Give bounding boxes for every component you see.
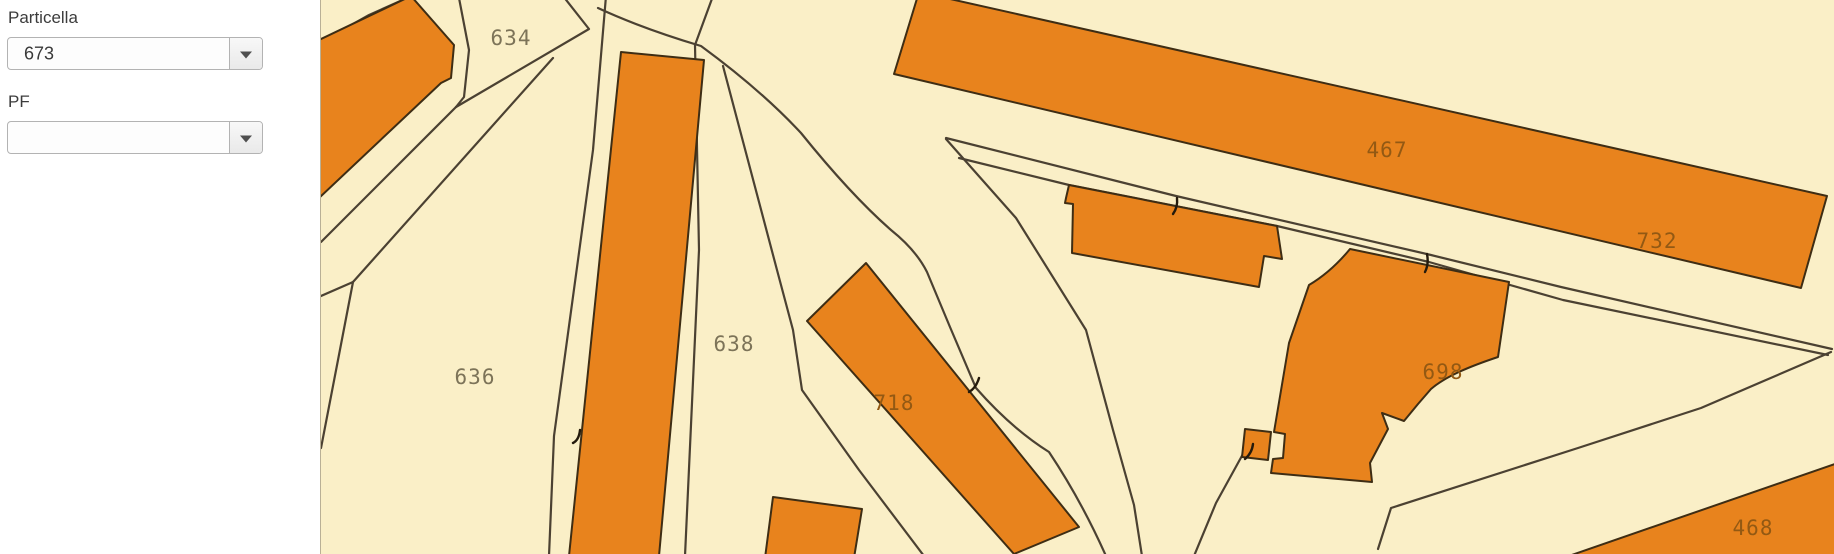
field-pf: PF bbox=[0, 92, 320, 154]
pf-label: PF bbox=[8, 92, 320, 112]
map-viewport[interactable]: 634 636 638 718 467 732 698 468 bbox=[320, 0, 1834, 554]
particella-selected-value: 673 bbox=[24, 43, 54, 64]
field-particella: Particella 673 bbox=[0, 8, 320, 70]
chevron-down-icon bbox=[240, 135, 252, 142]
parcel-label-638: 638 bbox=[714, 332, 755, 356]
parcel-label-732: 732 bbox=[1637, 229, 1678, 253]
particella-dropdown-button[interactable] bbox=[229, 38, 262, 69]
cadastral-map-canvas[interactable]: 634 636 638 718 467 732 698 468 bbox=[321, 0, 1834, 554]
pf-select[interactable] bbox=[7, 121, 263, 154]
parcel-label-698: 698 bbox=[1423, 360, 1464, 384]
particella-select[interactable]: 673 bbox=[7, 37, 263, 70]
parcel-label-718: 718 bbox=[874, 391, 915, 415]
particella-label: Particella bbox=[8, 8, 320, 28]
chevron-down-icon bbox=[240, 51, 252, 58]
parcel-label-467: 467 bbox=[1367, 138, 1408, 162]
pf-dropdown-button[interactable] bbox=[229, 122, 262, 153]
building-small-square bbox=[1242, 429, 1271, 460]
parcel-label-634: 634 bbox=[491, 26, 532, 50]
parcel-label-468: 468 bbox=[1733, 516, 1774, 540]
cadastral-viewer: Particella 673 PF bbox=[0, 0, 1834, 554]
sidebar: Particella 673 PF bbox=[0, 0, 320, 554]
parcel-label-636: 636 bbox=[455, 365, 496, 389]
